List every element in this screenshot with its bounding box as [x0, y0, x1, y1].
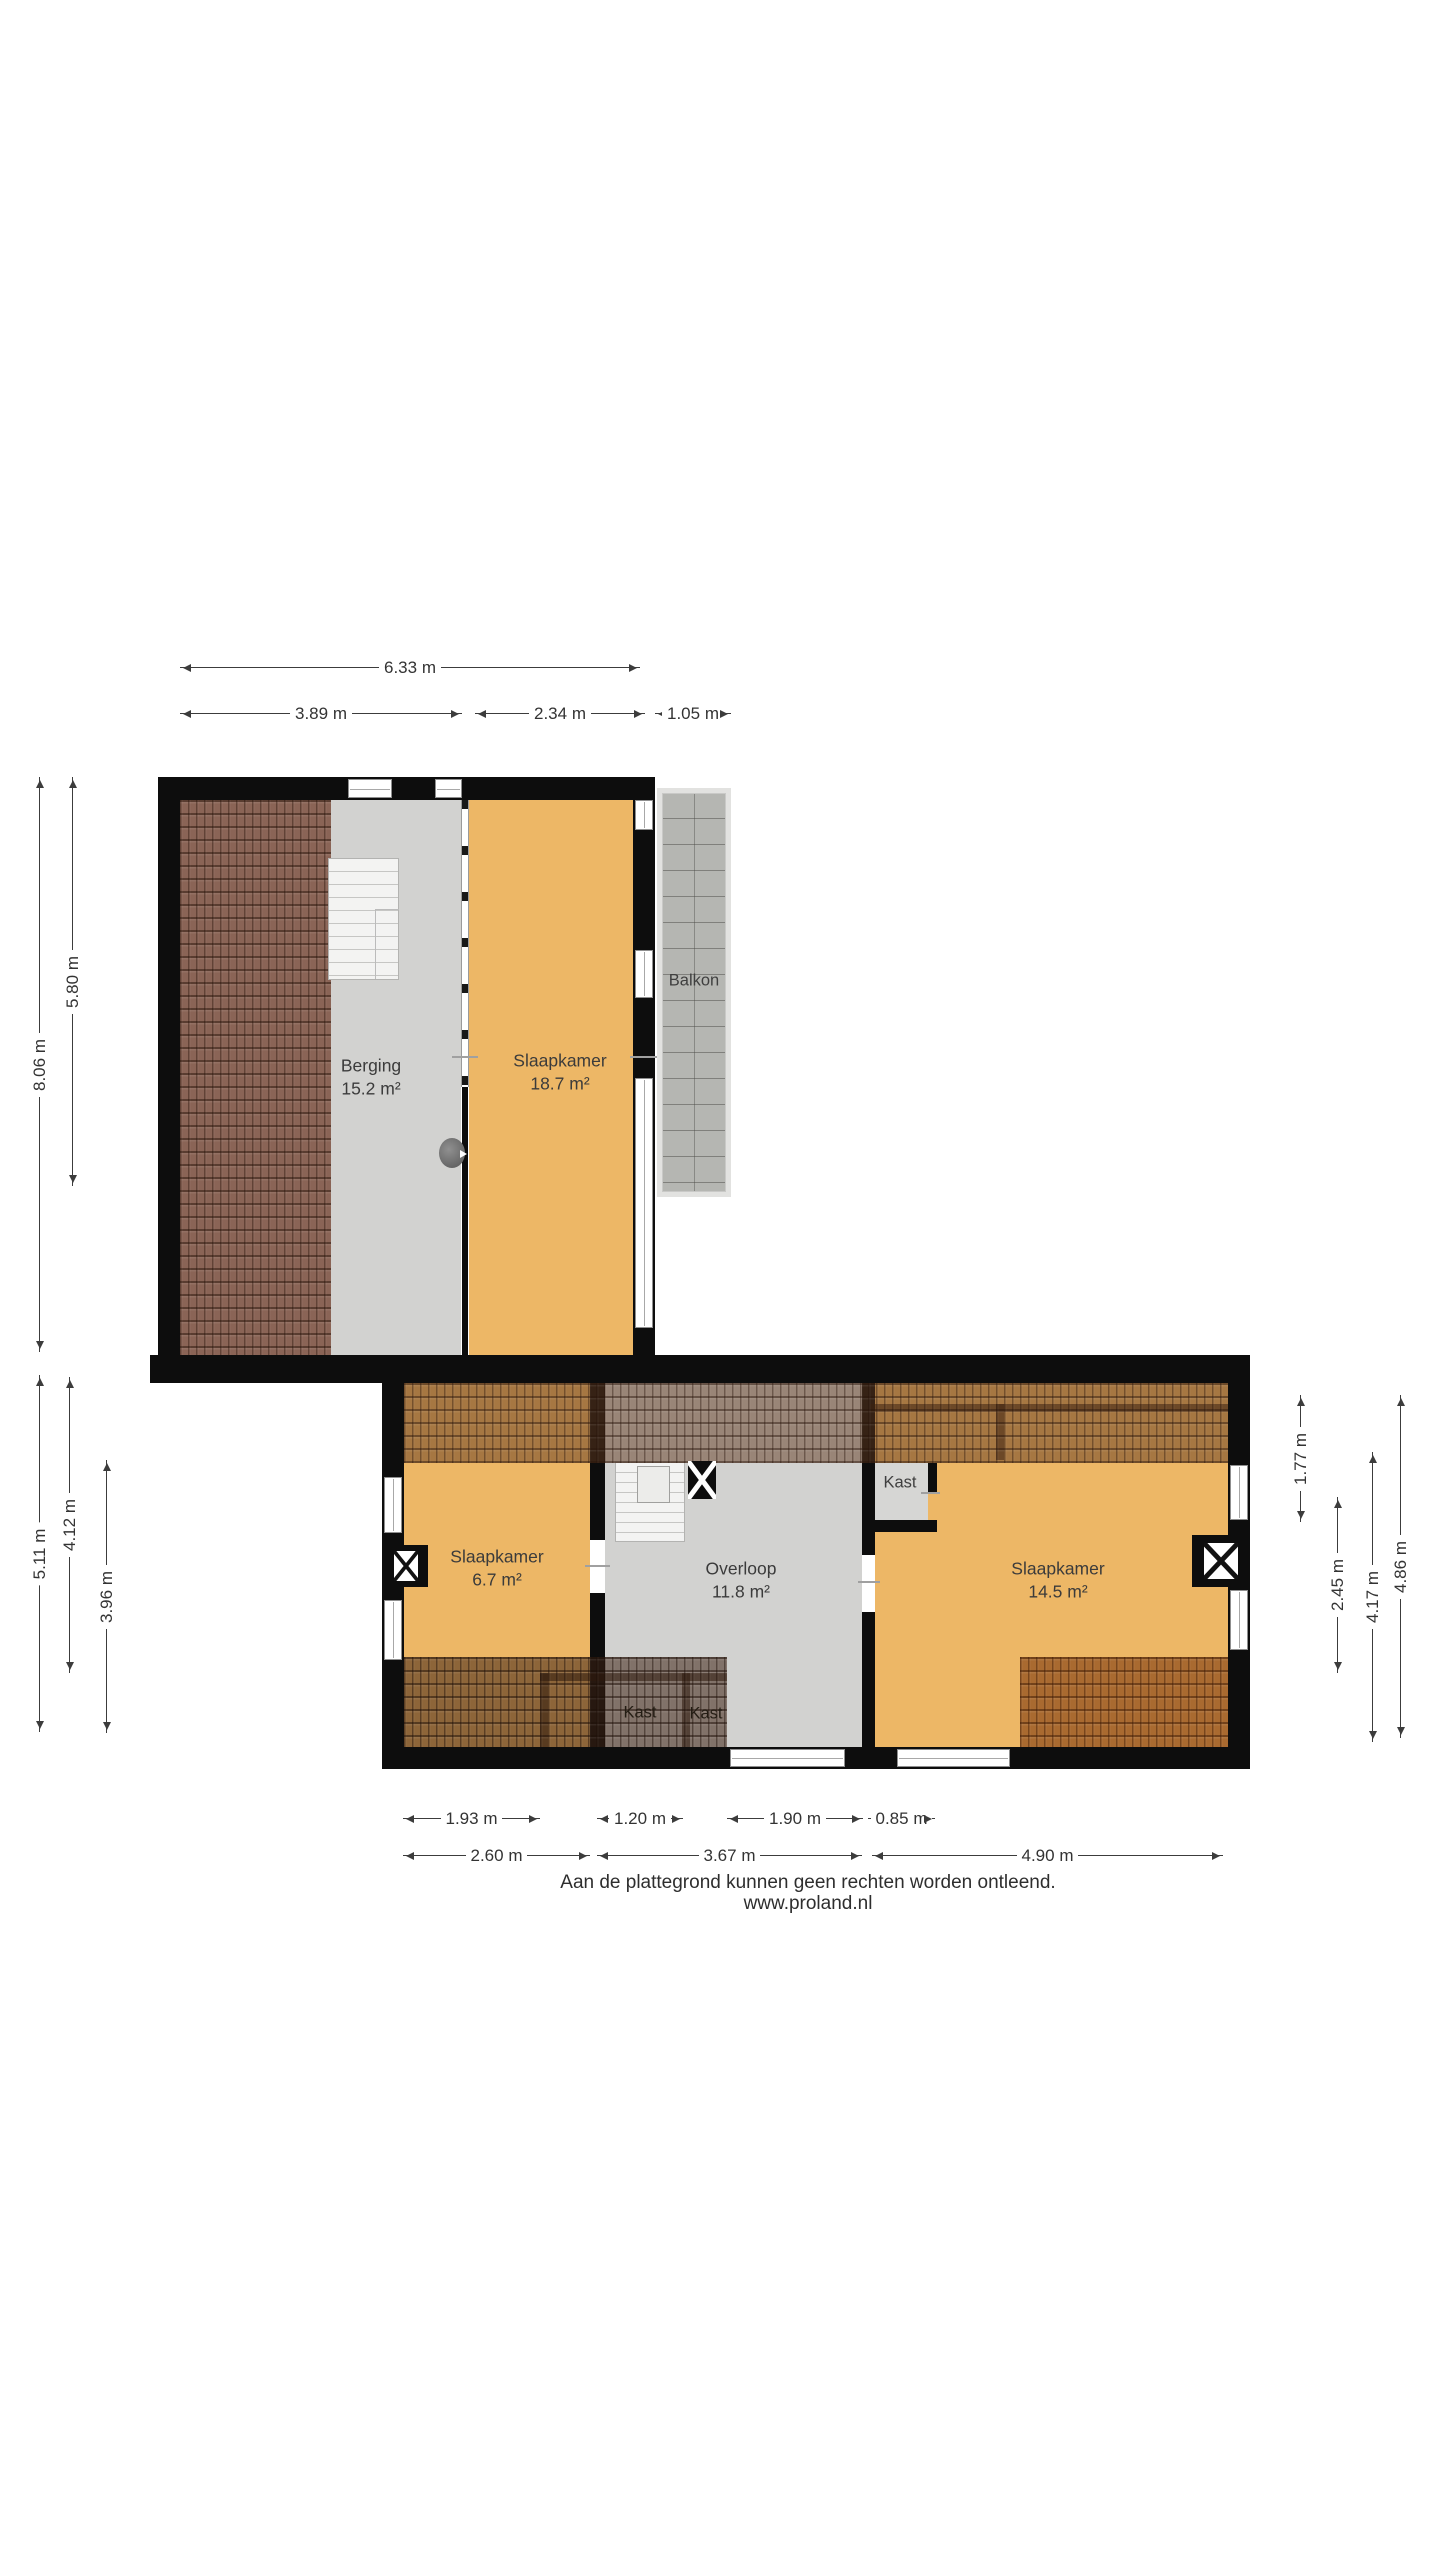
stair-rail	[637, 1466, 670, 1503]
door-tick	[858, 1581, 880, 1583]
website-text: www.proland.nl	[408, 1893, 1208, 1915]
dimension-right-177: 1.77 m	[1300, 1395, 1301, 1522]
room-area: 15.2 m²	[341, 1077, 401, 1100]
window	[730, 1749, 845, 1767]
dimension-top-389: 3.89 m	[180, 713, 462, 714]
room-name: Berging	[341, 1054, 401, 1077]
room-name: Slaapkamer	[1011, 1557, 1104, 1580]
room-label-slaapkamer3: Slaapkamer 14.5 m²	[1011, 1557, 1104, 1603]
dimension-left-412: 4.12 m	[69, 1377, 70, 1673]
flue-box-icon	[688, 1461, 716, 1499]
shared-middle-wall	[150, 1355, 1250, 1383]
room-label-kast1: Kast	[883, 1474, 916, 1493]
room-name: Slaapkamer	[450, 1545, 543, 1568]
dimension-top-105: 1.05 m	[655, 713, 731, 714]
window	[384, 1477, 402, 1533]
upper-top-wall	[158, 777, 655, 800]
room-label-overloop: Overloop 11.8 m²	[705, 1557, 776, 1603]
dimension-bottom-260: 2.60 m	[403, 1855, 590, 1856]
dimension-left-580: 5.80 m	[72, 777, 73, 1186]
glazed-partition	[461, 800, 469, 1087]
room-label-slaapkamer1: Slaapkamer 18.7 m²	[513, 1049, 606, 1095]
floorplan-page: Berging 15.2 m² Slaapkamer 18.7 m² Balko…	[0, 0, 1440, 2560]
door-tick	[452, 1056, 478, 1058]
dimension-bottom-490: 4.90 m	[872, 1855, 1223, 1856]
room-area: 18.7 m²	[513, 1072, 606, 1095]
room-label-balkon: Balkon	[669, 972, 719, 991]
dimension-bottom-367: 3.67 m	[597, 1855, 862, 1856]
dimension-right-245: 2.45 m	[1337, 1497, 1338, 1673]
dimension-bottom-120: 1.20 m	[597, 1818, 683, 1819]
dimension-bottom-193: 1.93 m	[403, 1818, 540, 1819]
room-area: 6.7 m²	[450, 1568, 543, 1591]
stair-rail	[375, 909, 399, 910]
room-label-kast2: Kast	[623, 1704, 656, 1723]
window	[1230, 1590, 1248, 1650]
room-label-kast3: Kast	[689, 1705, 722, 1724]
dimension-right-486: 4.86 m	[1400, 1395, 1401, 1738]
dimension-left-806: 8.06 m	[39, 777, 40, 1352]
dimension-left-396: 3.96 m	[106, 1460, 107, 1733]
room-label-slaapkamer2: Slaapkamer 6.7 m²	[450, 1545, 543, 1591]
flue-box-icon	[384, 1545, 428, 1587]
roof-overlay-top	[404, 1383, 1228, 1463]
roof-tiles-upper-strip	[180, 800, 331, 1355]
window	[348, 779, 392, 798]
stair-rail	[375, 909, 376, 979]
dimension-top-234: 2.34 m	[475, 713, 645, 714]
disclaimer-text: Aan de plattegrond kunnen geen rechten w…	[408, 1872, 1208, 1894]
berging-slaapkamer-wall	[462, 1087, 468, 1355]
roof-overlay-bottom-left	[404, 1657, 727, 1747]
door-opening	[862, 1555, 875, 1612]
window	[897, 1749, 1010, 1767]
dimension-left-511: 5.11 m	[39, 1375, 40, 1732]
room-name: Slaapkamer	[513, 1049, 606, 1072]
roof-overlay-bottom-right	[1020, 1657, 1228, 1747]
kast1-door-tick	[921, 1492, 940, 1494]
balcony	[657, 788, 731, 1197]
dimension-right-417: 4.17 m	[1372, 1452, 1373, 1742]
window	[635, 950, 653, 998]
window	[435, 779, 462, 798]
window	[635, 800, 653, 830]
room-area: 14.5 m²	[1011, 1580, 1104, 1603]
door-tick	[630, 1056, 657, 1058]
upper-left-wall	[158, 777, 180, 1380]
room-label-berging: Berging 15.2 m²	[341, 1054, 401, 1100]
window	[635, 1078, 653, 1328]
room-area: 11.8 m²	[705, 1580, 776, 1603]
dimension-bottom-085: 0.85 m	[868, 1818, 935, 1819]
stairs	[328, 858, 399, 980]
room-name: Overloop	[705, 1557, 776, 1580]
dimension-bottom-190: 1.90 m	[727, 1818, 863, 1819]
window	[1230, 1465, 1248, 1520]
dimension-top-633: 6.33 m	[180, 667, 640, 668]
kast1-bottom-wall	[862, 1520, 937, 1532]
door-tick	[585, 1565, 610, 1567]
flue-box-icon	[1192, 1535, 1250, 1587]
window	[384, 1600, 402, 1660]
kast1-right-wall	[928, 1463, 937, 1492]
door-knob-icon	[439, 1138, 465, 1168]
